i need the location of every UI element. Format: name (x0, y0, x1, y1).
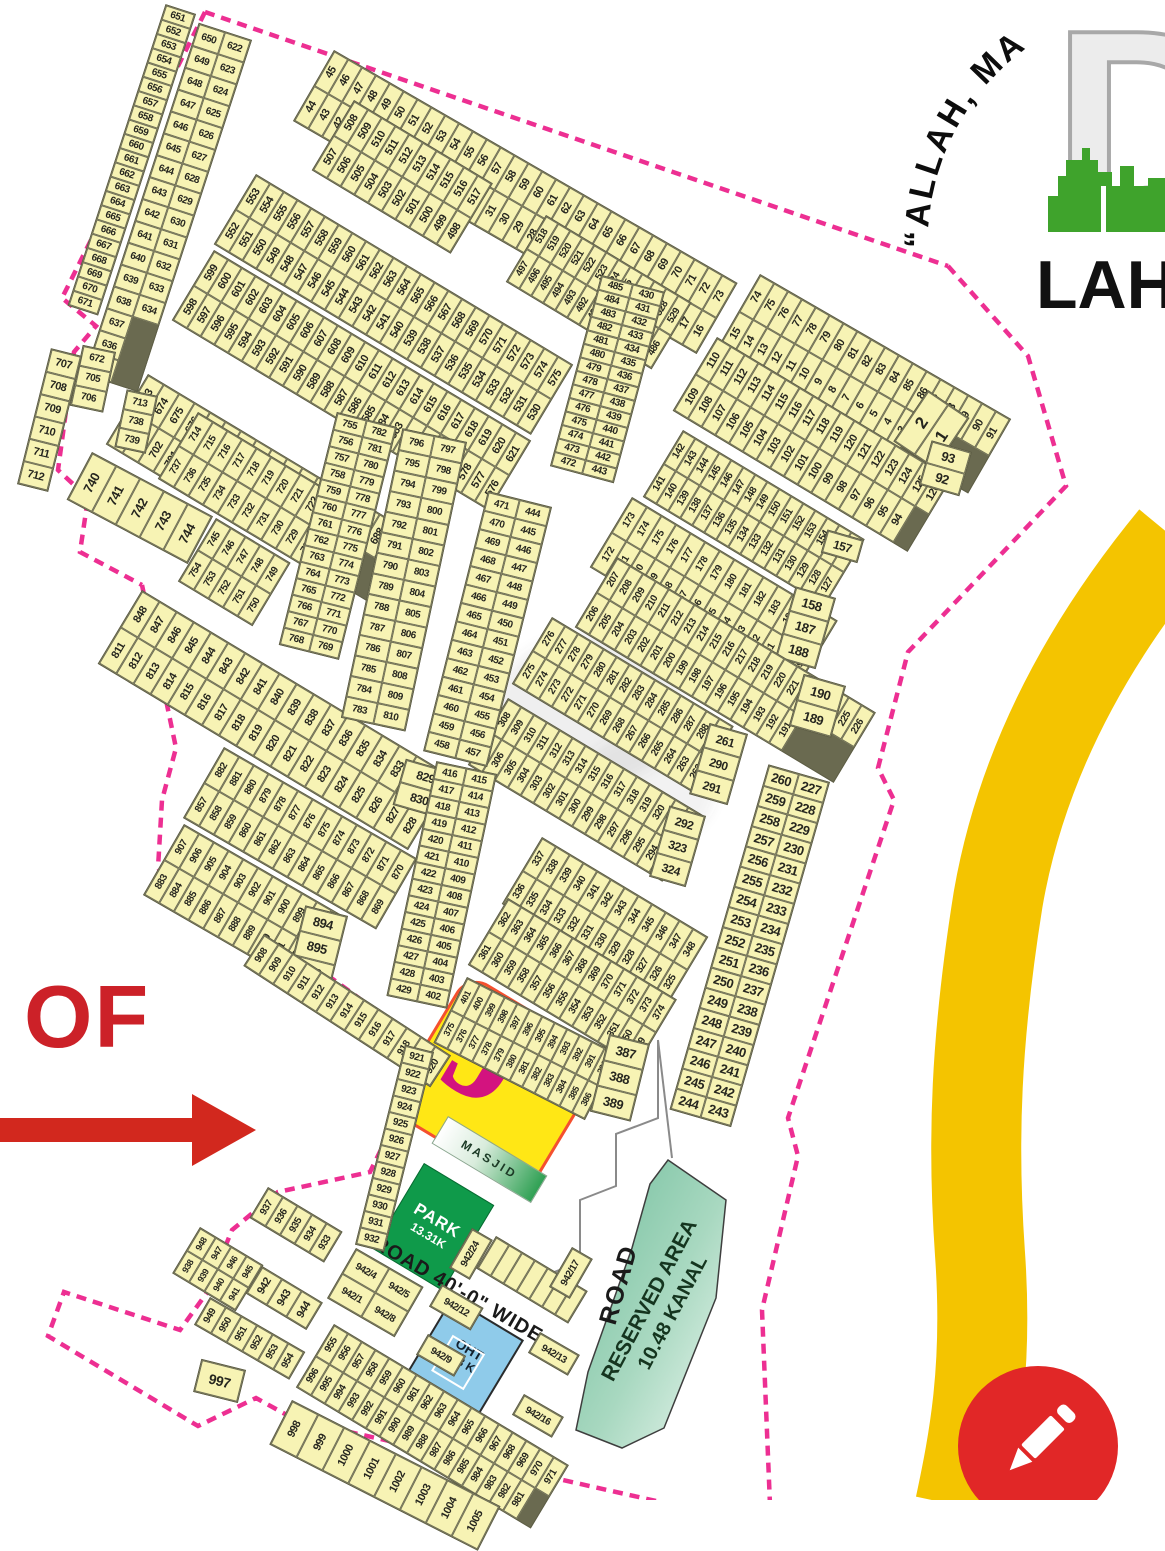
logo-motto: “ALLAH, MA (898, 23, 1033, 248)
pointer-arrow-icon (0, 1094, 256, 1166)
main-boulevard-road (960, 538, 1165, 1500)
road-outline (658, 1040, 672, 1158)
logo-letter: DH (1052, 0, 1165, 276)
society-logo: DH LAH “ALLAH, MA (898, 0, 1165, 323)
of-label: OF (24, 966, 150, 1068)
svg-text:“ALLAH, MA: “ALLAH, MA (898, 23, 1033, 248)
logo-name: LAH (1036, 247, 1165, 323)
